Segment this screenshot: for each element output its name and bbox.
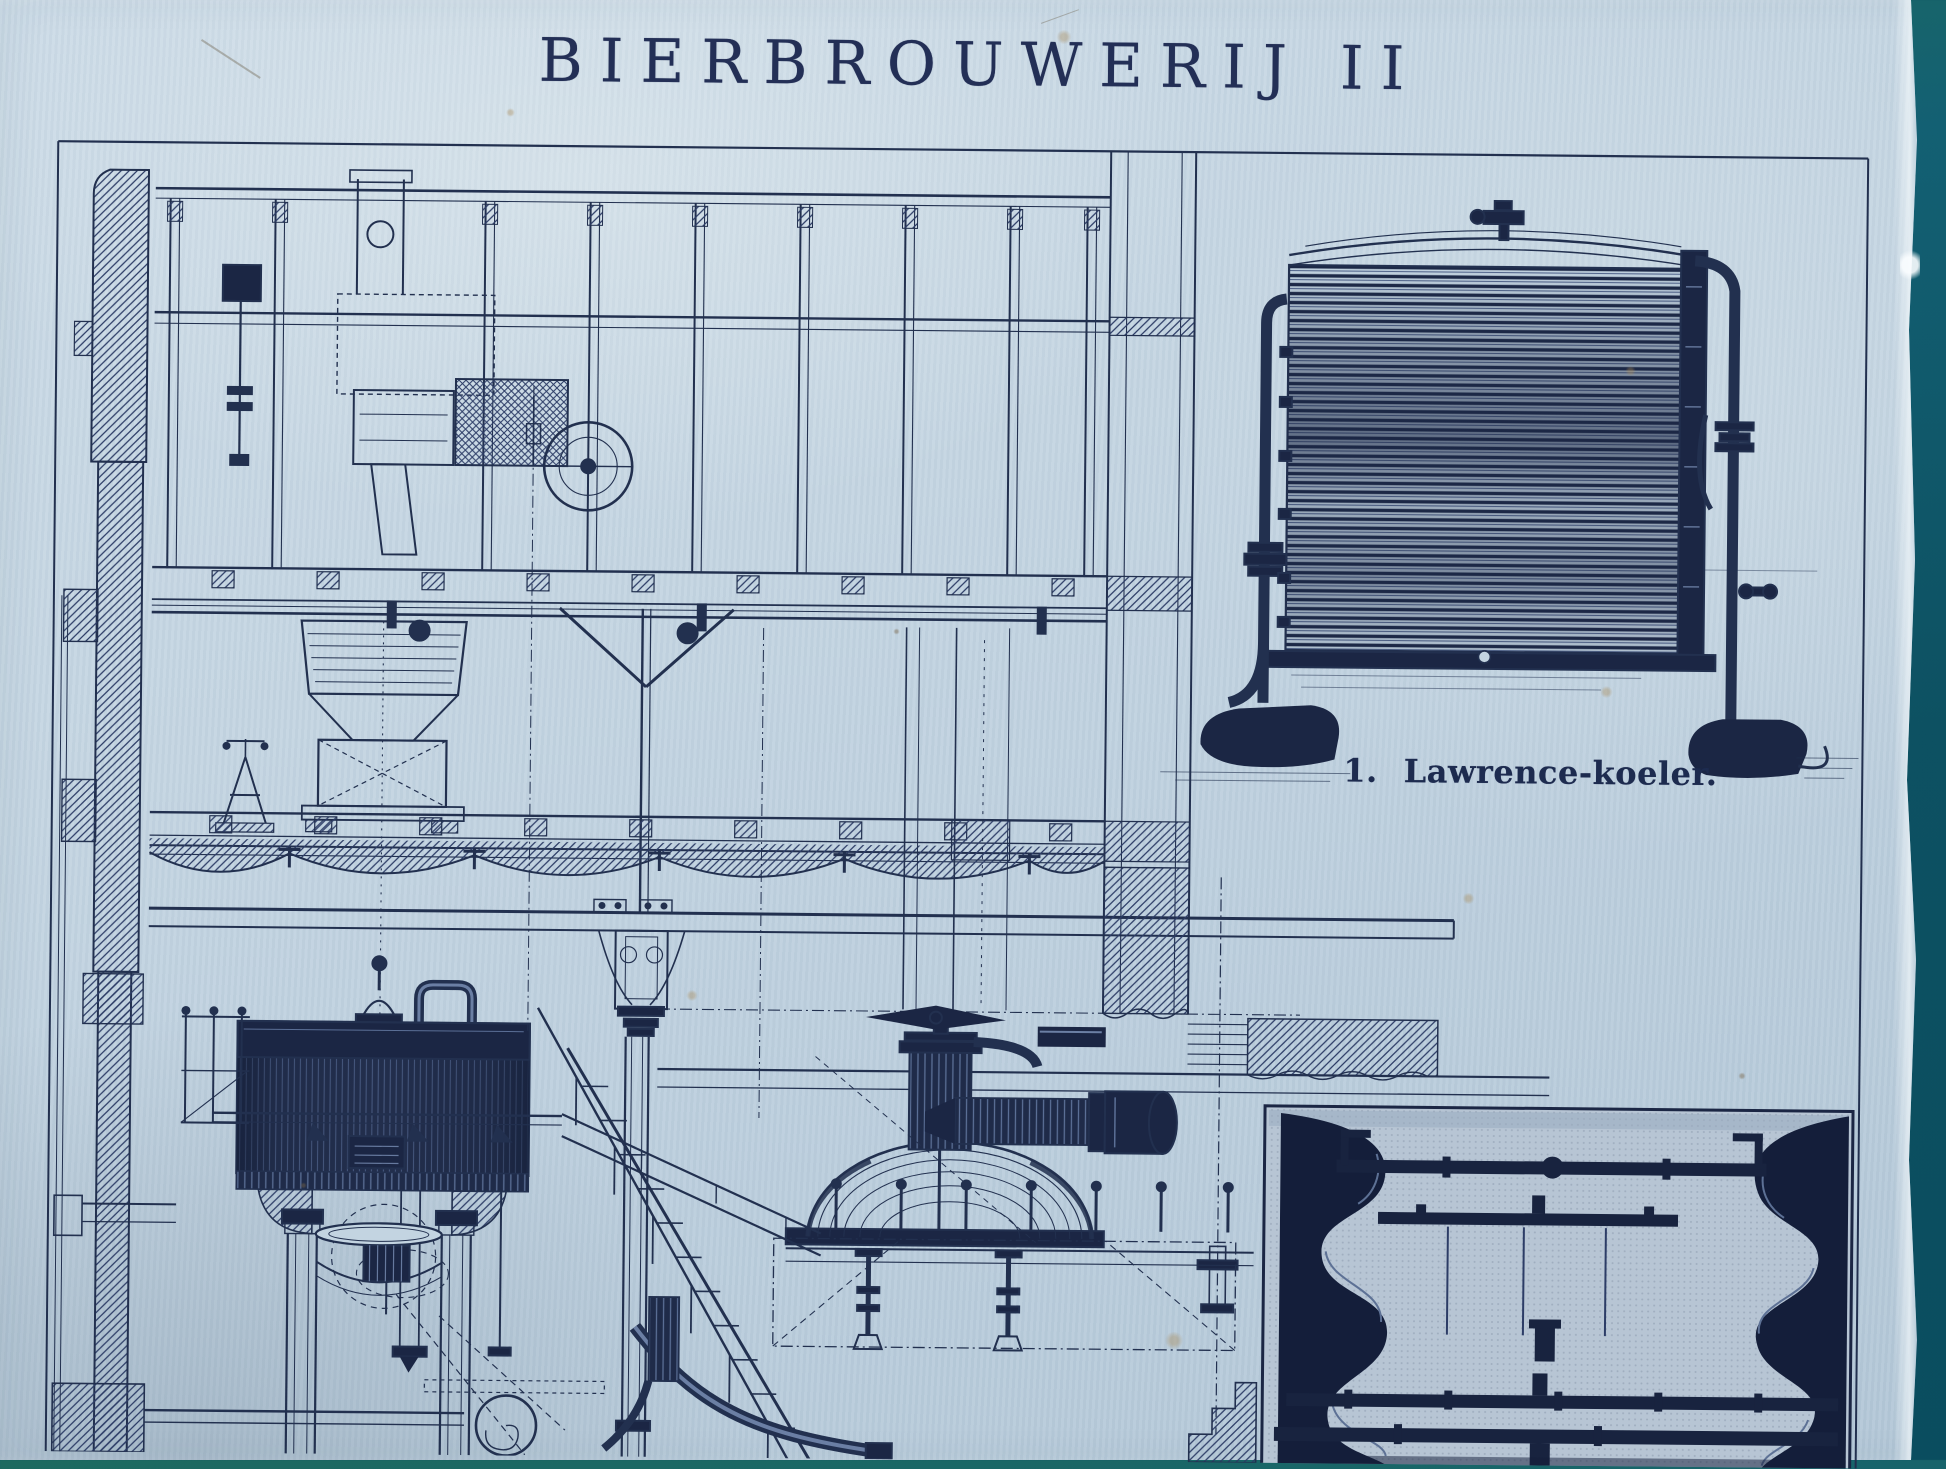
figure1-caption: 1. Lawrence-koeler.	[1343, 752, 1718, 794]
lawrence-koeler-figure	[1160, 198, 1864, 787]
plate-engraving	[0, 0, 1946, 1469]
corrugated-cooler-figure	[1262, 1106, 1854, 1469]
photo-backdrop: { "colors": { "backdrop": "#0d5162", "pa…	[0, 0, 1946, 1460]
mash-tun	[178, 954, 824, 1458]
top-floor-structure	[152, 188, 1111, 577]
roller-mill	[220, 169, 635, 557]
printed-plate: BIERBROUWERIJ II	[0, 0, 1946, 1469]
dashed-outline	[773, 1238, 1236, 1352]
kettle-dome	[786, 1140, 1255, 1265]
main-girder	[149, 895, 1454, 939]
figure1-number: 1.	[1343, 752, 1378, 790]
masonry-wall	[52, 169, 186, 1452]
figure1-label: Lawrence-koeler.	[1404, 752, 1718, 793]
kettle-valve-tower	[865, 1005, 1178, 1154]
paper-edge-nick	[1900, 248, 1920, 282]
